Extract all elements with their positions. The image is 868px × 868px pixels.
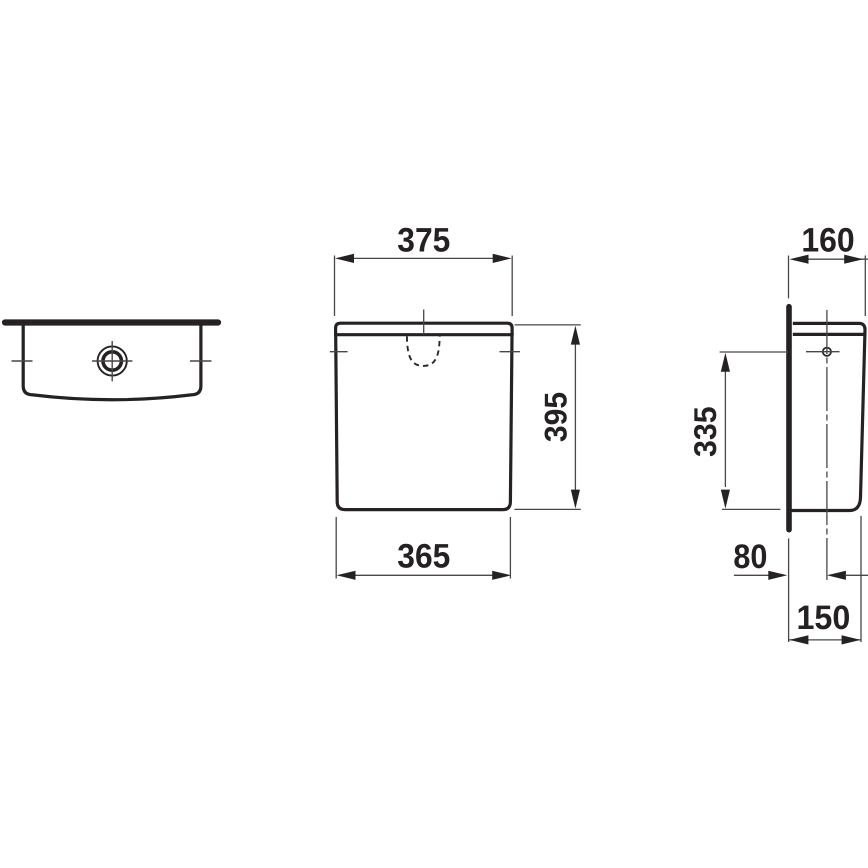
svg-text:395: 395	[537, 392, 573, 442]
svg-text:335: 335	[687, 406, 723, 457]
svg-text:160: 160	[801, 221, 854, 259]
svg-text:375: 375	[397, 222, 450, 260]
svg-text:150: 150	[797, 599, 851, 637]
svg-text:365: 365	[397, 538, 450, 576]
svg-text:80: 80	[733, 538, 767, 576]
